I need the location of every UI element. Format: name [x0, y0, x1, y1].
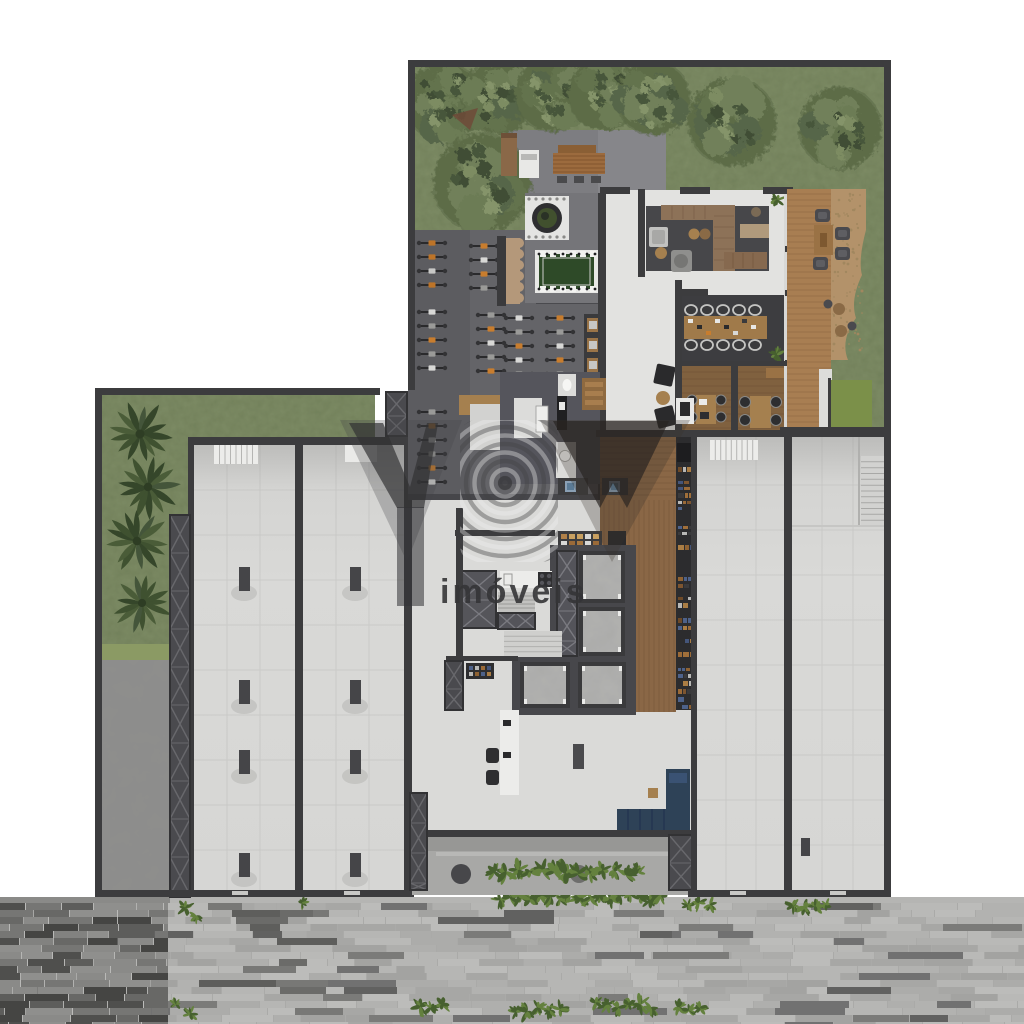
svg-text:imóveis: imóveis	[440, 573, 588, 611]
